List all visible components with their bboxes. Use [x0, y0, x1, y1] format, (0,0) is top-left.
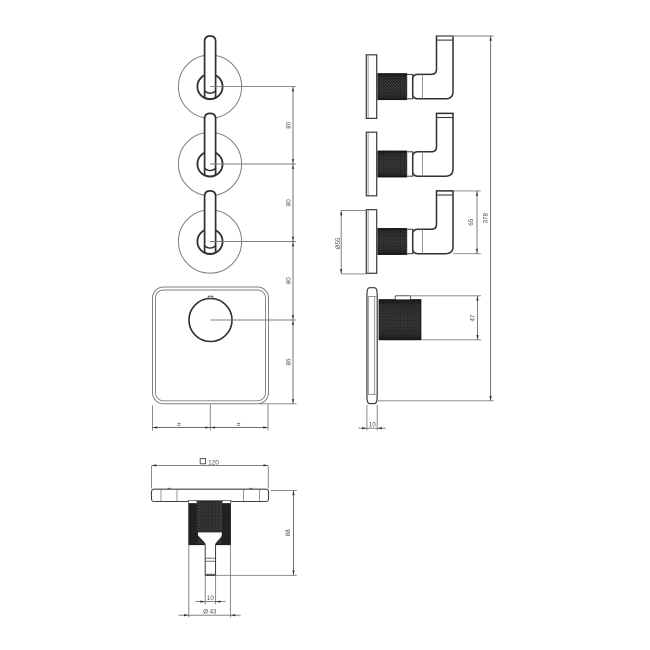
- svg-text:88: 88: [285, 529, 292, 537]
- svg-text:80: 80: [285, 277, 292, 285]
- svg-text:86: 86: [285, 358, 292, 366]
- svg-text:10: 10: [207, 595, 215, 602]
- svg-text:80: 80: [285, 199, 292, 207]
- svg-text:80: 80: [285, 121, 292, 129]
- svg-text:65: 65: [468, 218, 475, 226]
- svg-text:47: 47: [470, 314, 477, 322]
- svg-text:Ø 43: Ø 43: [203, 608, 217, 615]
- svg-text:Ø55: Ø55: [335, 237, 342, 249]
- svg-text:378: 378: [483, 213, 490, 224]
- svg-text:120: 120: [208, 459, 219, 466]
- svg-text:10: 10: [369, 421, 377, 428]
